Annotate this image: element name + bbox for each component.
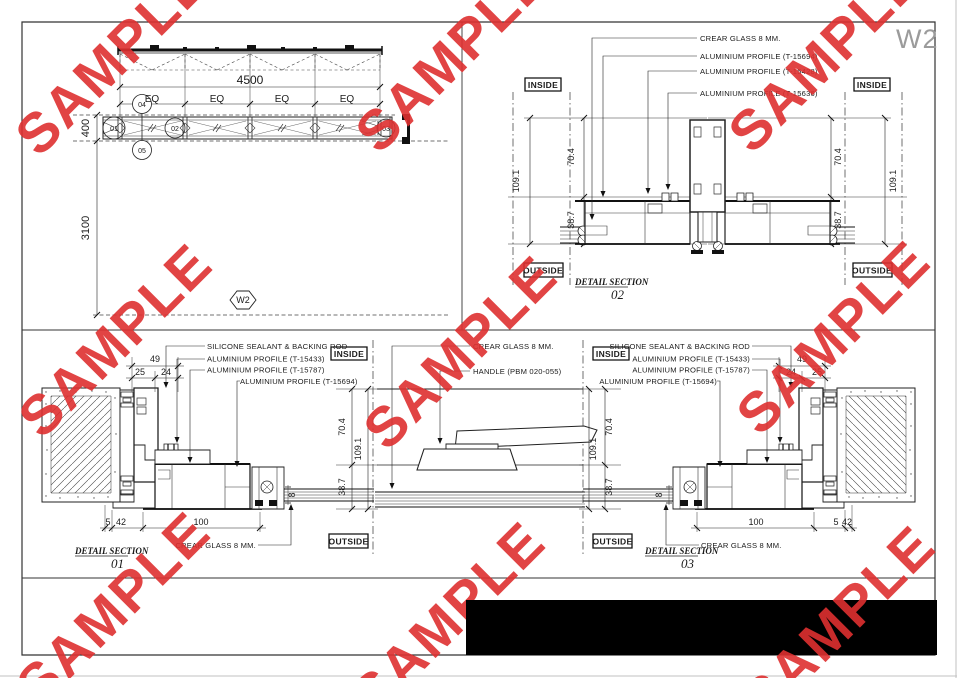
s02-title: DETAIL SECTION <box>574 277 649 287</box>
s03-dim-100: 100 <box>748 517 763 527</box>
s03-dim-49: 49 <box>797 354 807 364</box>
s01-dim-upper: 70.4 <box>337 418 347 436</box>
s02-outside-right: OUTSIDE <box>852 266 892 276</box>
s03-dim-25: 25 <box>812 367 822 377</box>
s03-callout-profile3: ALUMINIUM PROFILE (T-15694) <box>599 377 717 386</box>
s01-dim-total: 109.1 <box>353 438 363 461</box>
s01-callout-profile3: ALUMINIUM PROFILE (T-15694) <box>240 377 358 386</box>
s02-callout-glass: CREAR GLASS 8 MM. <box>700 34 781 43</box>
s02-callout-profile1: ALUMINIUM PROFILE (T-15694) <box>700 52 818 61</box>
s03-dim-upper: 70.4 <box>604 418 614 436</box>
s02-dim-total-right: 109.1 <box>888 170 898 193</box>
s03-callout-profile1: ALUMINIUM PROFILE (T-15433) <box>632 355 750 364</box>
detail-section-01 <box>42 346 374 545</box>
detail-section-03 <box>583 346 915 545</box>
dim-eq-2: EQ <box>210 94 225 105</box>
s01-callout-profile1: ALUMINIUM PROFILE (T-15433) <box>207 355 325 364</box>
s03-dim-total: 109.1 <box>588 438 598 461</box>
s02-callout-profile3: ALUMINIUM PROFILE (T-15636) <box>700 89 818 98</box>
dim-eq-4: EQ <box>340 94 355 105</box>
bubble-label-04: 04 <box>138 102 146 109</box>
cad-linework: W2 4500 EQ EQ EQ EQ 400 3100 01 02 03 04… <box>0 0 960 678</box>
s01-dim-100: 100 <box>193 517 208 527</box>
s02-number: 02 <box>611 287 625 302</box>
s02-dim-upper-right: 70.4 <box>833 148 843 166</box>
s01-dim-42: 42 <box>116 517 126 527</box>
s02-outside-left: OUTSIDE <box>523 266 563 276</box>
mid-handle-note: HANDLE (PBM 020-055) <box>473 367 562 376</box>
s01-glass-note: CREAR GLASS 8 MM. <box>175 541 256 550</box>
s03-dim-5: 5 <box>833 517 838 527</box>
s01-callout-profile2: ALUMINIUM PROFILE (T-15787) <box>207 366 325 375</box>
s03-number: 03 <box>681 556 695 571</box>
bubble-label-02: 02 <box>171 126 179 133</box>
bubble-label-01: 01 <box>110 126 118 133</box>
redaction-bar <box>466 600 937 655</box>
dim-400: 400 <box>80 119 92 137</box>
s03-dim-42: 42 <box>842 517 852 527</box>
dim-eq-3: EQ <box>275 94 290 105</box>
s01-callout-sealant: SILICONE SEALANT & BACKING ROD <box>207 342 348 351</box>
drawing-sheet: W2 4500 EQ EQ EQ EQ 400 3100 01 02 03 04… <box>0 0 960 678</box>
s01-dim-24: 24 <box>161 367 171 377</box>
s03-callout-sealant: SILICONE SEALANT & BACKING ROD <box>610 342 751 351</box>
s01-number: 01 <box>111 556 124 571</box>
handle-base <box>417 449 517 470</box>
s02-inside-right: INSIDE <box>857 80 887 90</box>
s02-dim-lower-right: 38.7 <box>833 211 843 229</box>
s03-dim-glass: 8 <box>654 492 664 497</box>
dim-eq-1: EQ <box>145 94 160 105</box>
s01-dim-25: 25 <box>135 367 145 377</box>
s01-dim-49: 49 <box>150 354 160 364</box>
dim-4500: 4500 <box>237 73 264 87</box>
bottom-inside-left: INSIDE <box>334 349 364 359</box>
s02-inside-left: INSIDE <box>528 80 558 90</box>
s02-dim-upper-left: 70.4 <box>566 148 576 166</box>
dim-3100: 3100 <box>80 216 92 240</box>
s02-dim-total-left: 109.1 <box>511 170 521 193</box>
s01-dim-glass: 8 <box>287 492 297 497</box>
s03-callout-profile2: ALUMINIUM PROFILE (T-15787) <box>632 366 750 375</box>
bottom-outside-right: OUTSIDE <box>593 537 633 547</box>
s02-callout-profile2: ALUMINIUM PROFILE (T-15428) <box>700 67 818 76</box>
s01-dim-lower: 38.7 <box>337 478 347 496</box>
s02-dim-lower-left: 38.7 <box>566 211 576 229</box>
mid-glass-note: CREAR GLASS 8 MM. <box>473 342 554 351</box>
bubble-label-03: 03 <box>382 126 390 133</box>
bottom-outside-left: OUTSIDE <box>329 537 369 547</box>
window-tag: W2 <box>236 295 250 305</box>
sheet-code: W2 <box>896 24 939 54</box>
s01-dim-5: 5 <box>105 517 110 527</box>
s01-title: DETAIL SECTION <box>74 546 149 556</box>
bubble-label-05: 05 <box>138 148 146 155</box>
s03-dim-lower: 38.7 <box>604 478 614 496</box>
s03-title: DETAIL SECTION <box>644 546 719 556</box>
s03-dim-24: 24 <box>786 367 796 377</box>
